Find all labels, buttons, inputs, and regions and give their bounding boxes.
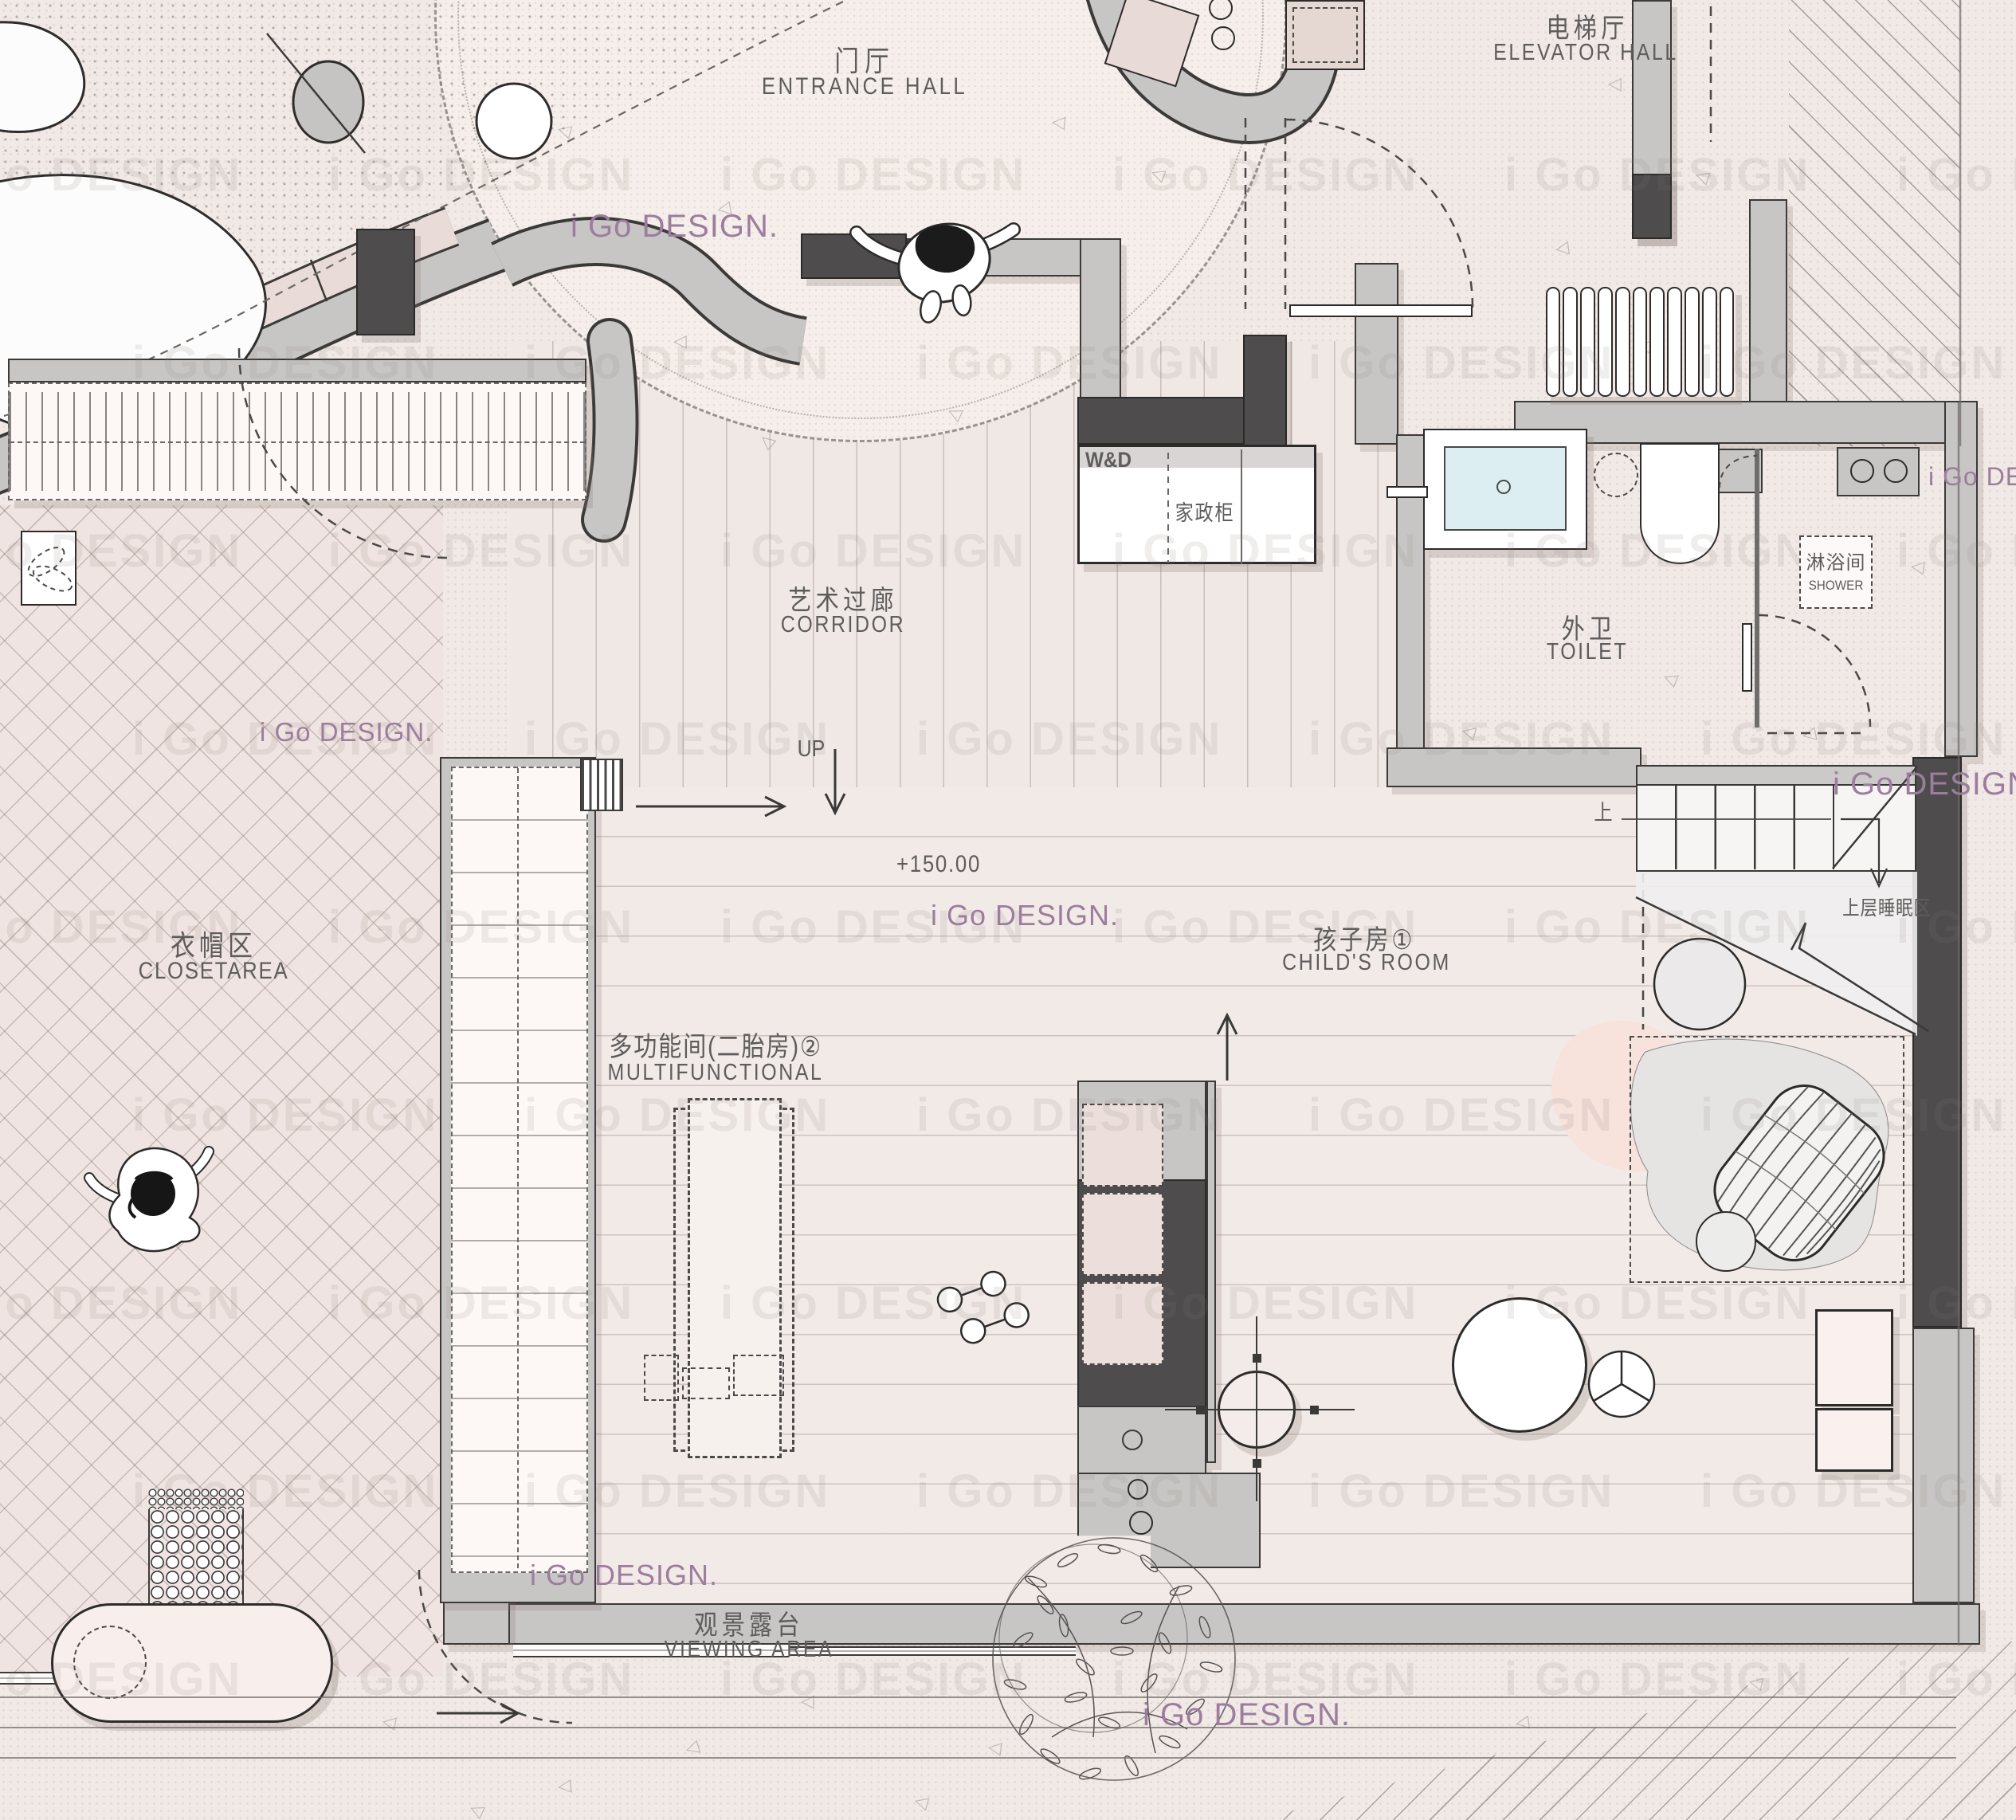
background-watermark: i Go DESIGN xyxy=(132,1088,438,1142)
shower-label-en: SHOWER xyxy=(1804,578,1867,594)
label-entrance-hall-en: ENTRANCE HALL xyxy=(762,73,967,100)
faceted-ball-icon xyxy=(1589,1351,1654,1417)
brand-watermark: i Go DESIGN. xyxy=(260,717,433,747)
label-upper-sleeping-area: 上层睡眠区 xyxy=(1842,892,1932,921)
background-watermark: i Go DESIGN xyxy=(132,336,438,390)
label-closet-area-en: CLOSETAREA xyxy=(139,958,289,985)
background-watermark: i Go DESIGN xyxy=(524,1088,830,1142)
background-watermark: i Go DESIGN xyxy=(328,1277,634,1330)
background-watermark: i Go DESIGN xyxy=(1112,148,1418,202)
tree-leaf xyxy=(1120,1610,1143,1626)
background-watermark: i Go DESIGN xyxy=(1896,524,2016,578)
background-watermark: i Go DESIGN xyxy=(1700,336,2006,390)
background-watermark: i Go DESIGN xyxy=(720,148,1026,202)
background-watermark: i Go DESIGN xyxy=(1504,900,1810,954)
label-housekeeping-cabinet: 家政柜 xyxy=(1175,496,1235,527)
brand-watermark: i Go DESIGN. xyxy=(1143,1697,1351,1733)
background-watermark: i Go DESIGN xyxy=(720,1277,1026,1330)
background-watermark: i Go DESIGN xyxy=(1308,1088,1614,1142)
tree-leaf xyxy=(1169,1584,1193,1598)
tree-leaf xyxy=(1157,1631,1174,1655)
label-childs-room-en: CHILD'S ROOM xyxy=(1282,950,1451,976)
background-watermark: i Go DESIGN xyxy=(328,1653,634,1706)
background-watermark: i Go DESIGN xyxy=(1112,1277,1418,1330)
brand-watermark: i Go DESIGN. xyxy=(530,1559,718,1592)
shower-label-zh: 淋浴间 xyxy=(1801,547,1871,575)
background-watermark: i Go DESIGN xyxy=(1700,712,2006,766)
background-watermark: i Go DESIGN xyxy=(1896,1653,2016,1706)
background-watermark: i Go DESIGN xyxy=(1112,524,1418,578)
label-washer-dryer: W&D xyxy=(1085,448,1132,473)
person-top-view-entrance xyxy=(857,212,1014,324)
label-multifunctional-zh: 多功能间(二胎房)② xyxy=(609,1025,822,1064)
tree-leaf xyxy=(1158,1734,1182,1751)
background-watermark: i Go DESIGN xyxy=(720,524,1026,578)
tree-leaf xyxy=(1056,1551,1079,1570)
background-watermark: i Go DESIGN xyxy=(132,1465,438,1518)
label-stair-up: 上 xyxy=(1594,795,1612,826)
background-watermark: i Go DESIGN xyxy=(1700,1465,2006,1518)
brand-watermark: i Go DESIGN. xyxy=(571,209,779,245)
background-watermark: i Go DESIGN xyxy=(1504,1277,1810,1330)
background-watermark: i Go DESIGN xyxy=(0,148,242,202)
background-watermark: i Go DESIGN xyxy=(524,336,830,390)
background-watermark: i Go DESIGN xyxy=(1308,1465,1614,1518)
background-watermark: i Go DESIGN xyxy=(1308,336,1614,390)
tree-leaf xyxy=(1058,1614,1070,1637)
background-watermark: i Go DESIGN xyxy=(916,336,1222,390)
background-watermark: i Go DESIGN xyxy=(1700,1088,2006,1142)
label-floor-level: +150.00 xyxy=(896,851,981,878)
tree-leaf xyxy=(1018,1712,1036,1736)
label-up-corridor: UP xyxy=(798,736,826,763)
background-watermark: i Go DESIGN xyxy=(0,524,242,578)
tree-leaf xyxy=(1012,1630,1035,1649)
kids-round-pouf xyxy=(1696,1211,1756,1272)
background-watermark: i Go DESIGN xyxy=(0,1653,242,1706)
label-viewing-area-en: VIEWING AREA xyxy=(665,1637,834,1663)
label-elevator-hall-en: ELEVATOR HALL xyxy=(1493,40,1678,66)
background-watermark: i Go DESIGN xyxy=(916,712,1222,766)
tree-leaf xyxy=(1198,1615,1213,1639)
background-watermark: i Go DESIGN xyxy=(328,148,634,202)
label-multifunctional-en: MULTIFUNCTIONAL xyxy=(607,1060,823,1086)
background-watermark: i Go DESIGN xyxy=(524,712,830,766)
brand-watermark: i Go DESIGN. xyxy=(1833,767,2016,802)
floor-plan-canvas: 淋浴间 SHOWER xyxy=(0,0,2016,1820)
brand-watermark: i Go DESIGN. xyxy=(1928,462,2016,492)
background-watermark: i Go DESIGN xyxy=(1308,712,1614,766)
label-corridor-en: CORRIDOR xyxy=(781,612,905,638)
tree-leaf xyxy=(1024,1575,1048,1590)
background-watermark: i Go DESIGN xyxy=(916,1465,1222,1518)
tree-leaf xyxy=(1097,1543,1120,1555)
person-top-view-closet xyxy=(89,1148,209,1251)
background-watermark: i Go DESIGN xyxy=(1504,524,1810,578)
background-watermark: i Go DESIGN xyxy=(916,1088,1222,1142)
shower-label-box: 淋浴间 SHOWER xyxy=(1799,535,1873,609)
tree-leaf xyxy=(1139,1553,1160,1575)
background-watermark: i Go DESIGN xyxy=(328,524,634,578)
background-watermark: i Go DESIGN xyxy=(1504,148,1810,202)
background-watermark: i Go DESIGN xyxy=(328,900,634,954)
background-watermark: i Go DESIGN xyxy=(1896,1277,2016,1330)
tree-leaf xyxy=(1074,1657,1096,1677)
background-watermark: i Go DESIGN xyxy=(0,1277,242,1330)
background-watermark: i Go DESIGN xyxy=(524,1465,830,1518)
background-watermark: i Go DESIGN xyxy=(1504,1653,1810,1706)
background-watermark: i Go DESIGN xyxy=(1896,148,2016,202)
label-toilet-en: TOILET xyxy=(1547,639,1628,665)
brand-watermark: i Go DESIGN. xyxy=(931,899,1119,932)
